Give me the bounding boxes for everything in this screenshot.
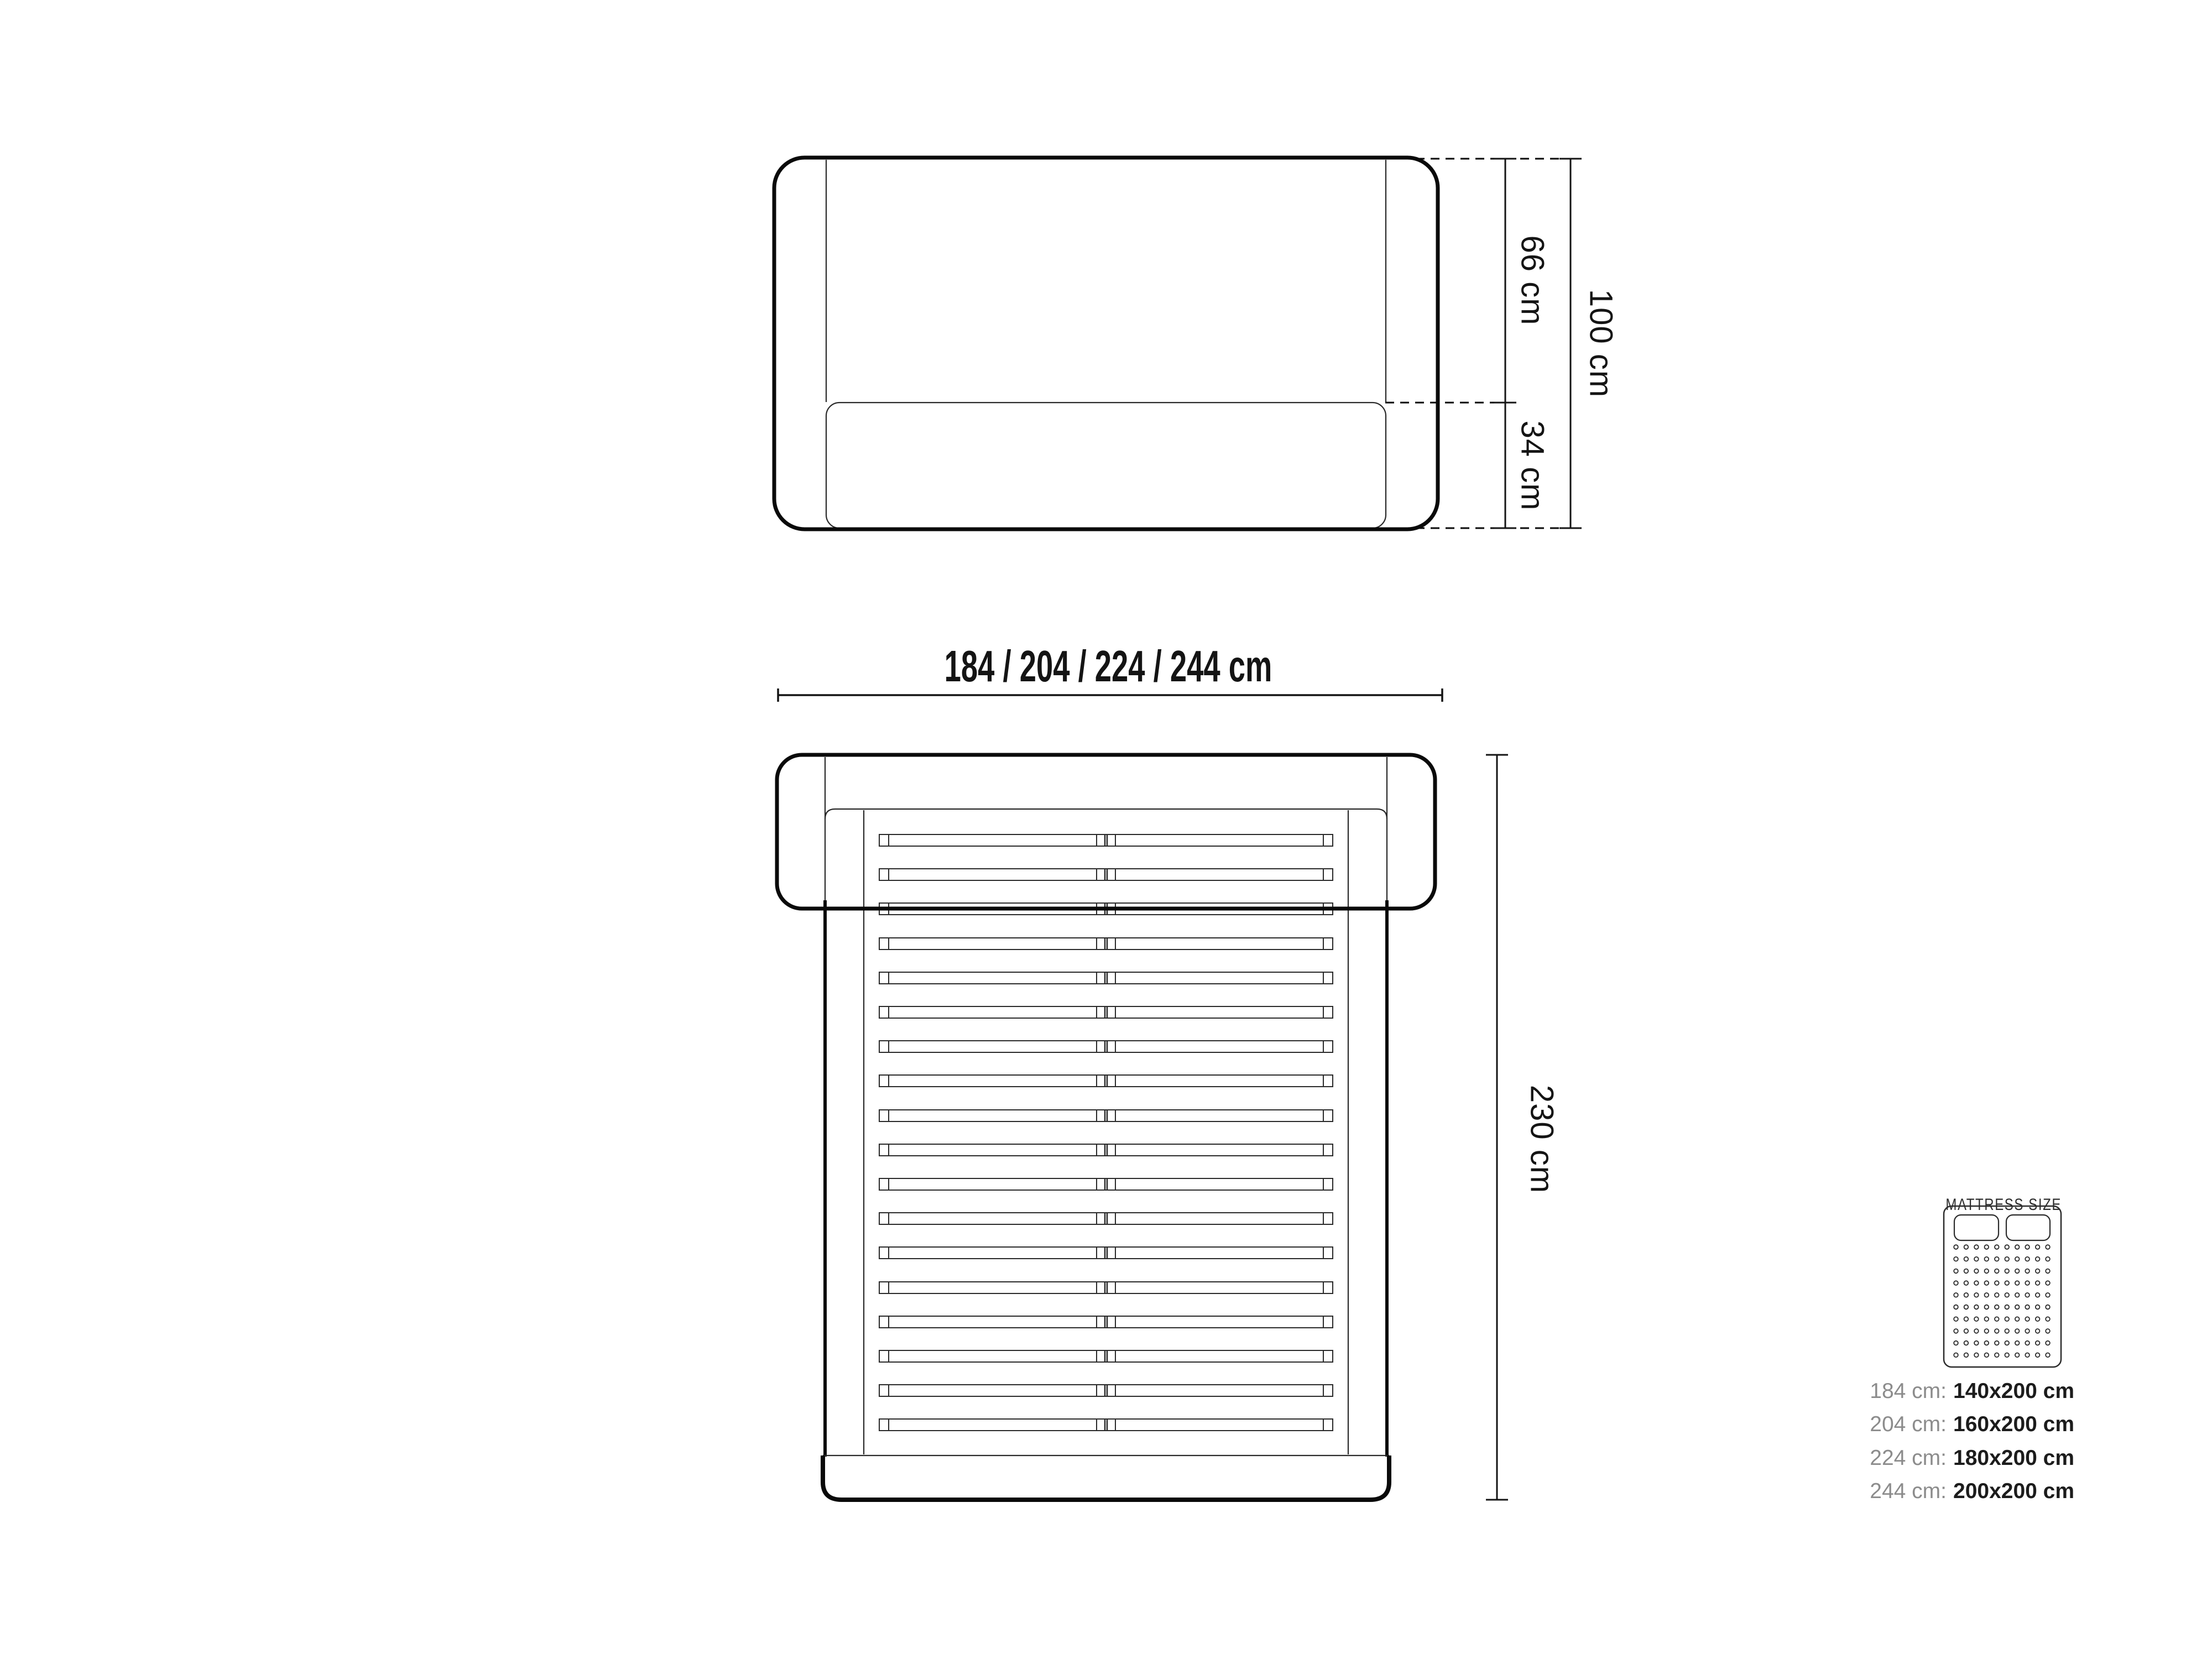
size-row-label: 184 cm: <box>1870 1379 1947 1403</box>
size-row-label: 244 cm: <box>1870 1479 1947 1503</box>
mattress-icon-tufting-dots <box>1954 1245 2050 1357</box>
legend-title: MATTRESS SIZE <box>1945 1194 2062 1213</box>
mattress-icon-pillow-right <box>2006 1215 2050 1240</box>
size-row: 184 cm: 140x200 cm <box>1870 1379 2074 1403</box>
front-dim-line-66-34 <box>1494 159 1516 528</box>
diagram-svg: 66 cm 34 cm 100 cm 184 / 204 / 224 / 244… <box>0 0 2212 1659</box>
width-dimension: 184 / 204 / 224 / 244 cm <box>778 642 1442 702</box>
top-headboard-outline <box>777 755 1435 909</box>
front-base-outline <box>826 403 1386 528</box>
size-row-value: 140x200 cm <box>1953 1379 2074 1403</box>
top-frame-top-edge <box>825 809 1387 819</box>
mattress-icon-pillow-left <box>1954 1215 1999 1240</box>
size-row-value: 180x200 cm <box>1953 1446 2074 1470</box>
front-outer-outline <box>774 158 1438 529</box>
size-row: 204 cm: 160x200 cm <box>1870 1412 2074 1436</box>
top-footboard-outline <box>823 1455 1389 1500</box>
size-row-value: 160x200 cm <box>1953 1412 2074 1436</box>
front-dim-line-100 <box>1559 159 1582 528</box>
front-dim-label-66: 66 cm <box>1515 236 1551 326</box>
top-dim-label-230: 230 cm <box>1524 1085 1560 1193</box>
mattress-size-rows: 184 cm: 140x200 cm 204 cm: 160x200 cm 22… <box>1870 1379 2074 1503</box>
slat-group <box>879 834 1333 1431</box>
front-dim-label-100: 100 cm <box>1583 289 1619 398</box>
size-row-value: 200x200 cm <box>1953 1479 2074 1503</box>
front-view: 66 cm 34 cm 100 cm <box>774 158 1619 529</box>
mattress-icon <box>1944 1206 2061 1367</box>
top-dim-line-230 <box>1486 755 1508 1500</box>
width-dim-label: 184 / 204 / 224 / 244 cm <box>945 642 1272 691</box>
top-view: 230 cm <box>777 755 1560 1500</box>
bed-dimension-diagram: 66 cm 34 cm 100 cm 184 / 204 / 224 / 244… <box>0 0 2212 1659</box>
size-row: 224 cm: 180x200 cm <box>1870 1446 2074 1470</box>
size-row: 244 cm: 200x200 cm <box>1870 1479 2074 1503</box>
mattress-size-legend: MATTRESS SIZE <box>1870 1194 2074 1503</box>
front-dim-label-34: 34 cm <box>1515 421 1551 511</box>
size-row-label: 224 cm: <box>1870 1446 1947 1470</box>
size-row-label: 204 cm: <box>1870 1412 1947 1436</box>
